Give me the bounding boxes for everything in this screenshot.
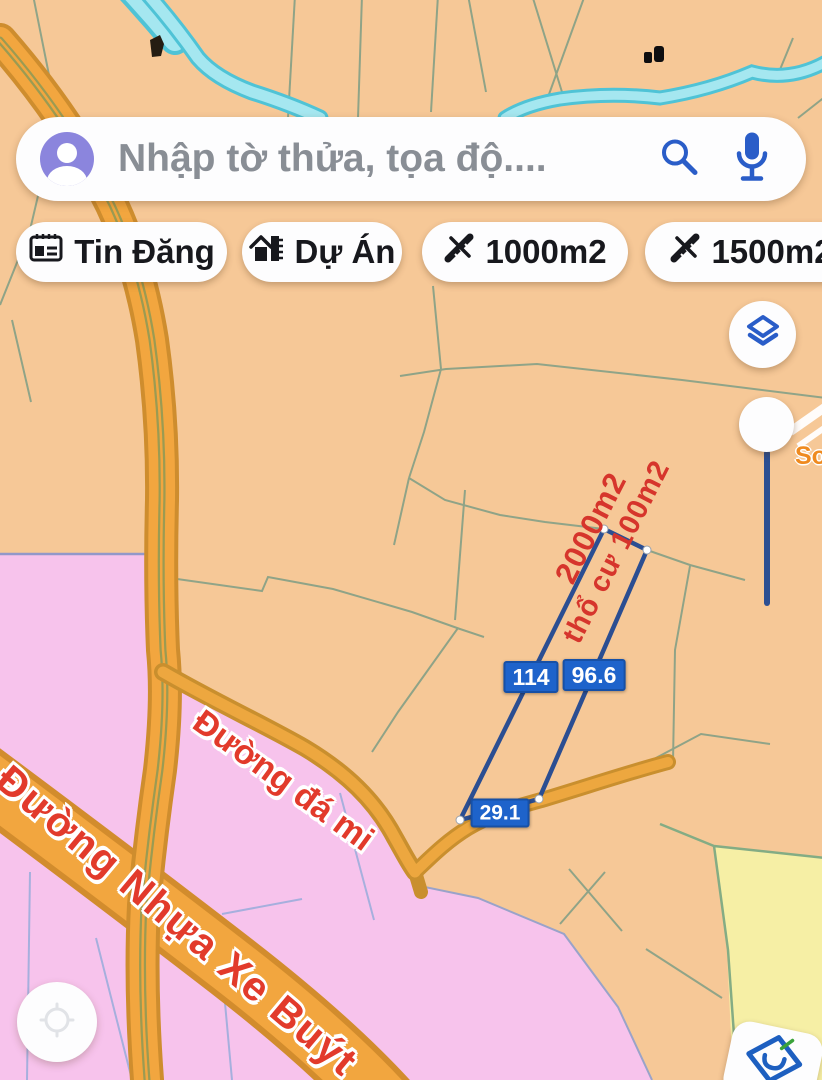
zoom-slider-track[interactable]	[764, 450, 770, 606]
search-bar	[16, 117, 806, 201]
area-measure-icon	[669, 232, 701, 272]
chip-label: 1500m2	[711, 233, 822, 271]
map-structure-mark	[654, 46, 664, 62]
project-house-icon	[249, 232, 285, 272]
chip-1000m2[interactable]: 1000m2	[422, 222, 628, 282]
search-input[interactable]	[116, 117, 636, 201]
search-icon[interactable]	[658, 136, 700, 183]
chip-label: 1000m2	[485, 233, 606, 271]
avatar-head-shape	[57, 143, 77, 163]
diamond-logo-icon	[737, 1027, 809, 1080]
compass-icon	[37, 1000, 77, 1045]
zoom-slider-knob[interactable]	[739, 397, 794, 452]
screen: 2000m2 thổ cư 100m2 114 96.6 29.1 Đường …	[0, 0, 822, 1080]
chip-label: Dự Án	[295, 233, 396, 271]
watermark-text: So	[795, 442, 822, 471]
layers-icon	[743, 313, 783, 356]
edge-measure-badge: 96.6	[563, 659, 626, 691]
chip-tin-dang[interactable]: Tin Đăng	[16, 222, 227, 282]
brand-watermark: So	[792, 400, 822, 476]
area-measure-icon	[443, 232, 475, 272]
chip-label: Tin Đăng	[74, 233, 215, 271]
chip-du-an[interactable]: Dự Án	[242, 222, 402, 282]
edge-measure-badge: 29.1	[471, 799, 530, 828]
listing-grid-icon	[28, 232, 64, 272]
microphone-icon[interactable]	[732, 130, 772, 189]
map-structure-mark	[644, 52, 652, 63]
user-avatar-icon[interactable]	[40, 132, 94, 186]
chip-1500m2[interactable]: 1500m2	[645, 222, 822, 282]
layers-button[interactable]	[729, 301, 796, 368]
edge-measure-badge: 114	[503, 661, 558, 693]
avatar-body-shape	[47, 166, 87, 186]
locate-button[interactable]	[17, 982, 97, 1062]
